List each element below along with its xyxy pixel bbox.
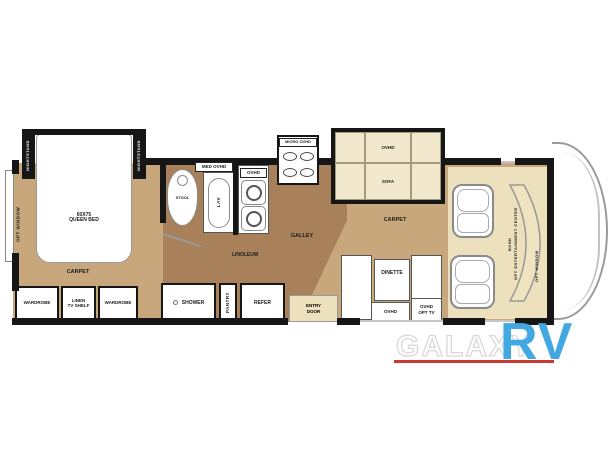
entertainment-center-label: OPT ENTERTAINMENT CENTER <box>514 197 519 291</box>
micro-ovhd-text: MICRO OVHD <box>285 140 311 144</box>
sofa-seat-left <box>335 163 365 200</box>
bottom-wall-4 <box>443 318 485 325</box>
shower-drain-icon <box>173 300 178 305</box>
sofa-ovhd-label: OVHD <box>381 145 394 150</box>
kitchen-sink-1 <box>241 180 266 205</box>
front-cap <box>552 142 608 320</box>
dinette-ovhd-label: OVHD <box>384 309 397 314</box>
linen-label-2: TV SHELF <box>68 303 90 308</box>
wardrobe-left-label: WARDROBE <box>24 300 51 305</box>
rear-corner-wall-bottom <box>12 253 19 291</box>
passenger-seat-cushion <box>455 284 490 304</box>
sofa-ovhd-cabinet-center: OVHD <box>365 132 412 163</box>
passenger-seat <box>450 255 495 309</box>
bunk-entertainment-labels: BUNK OPT ENTERTAINMENT CENTER <box>508 197 518 291</box>
queen-bed-label: 60x75 QUEEN BED <box>69 213 99 263</box>
wardrobe-right-label: WARDROBE <box>105 300 132 305</box>
refer: REFER <box>240 283 285 322</box>
bottom-wall-3 <box>337 318 360 325</box>
watermark-suffix-text: RV <box>500 312 573 372</box>
toilet-tank-icon <box>177 175 188 186</box>
toilet: STOOL <box>167 169 198 226</box>
stove: MICRO OVHD <box>277 135 319 185</box>
bottom-wall-1 <box>12 318 165 325</box>
nightstand-right: NIGHTSTAND <box>133 133 146 179</box>
bed-type-label: QUEEN BED <box>69 218 99 224</box>
bunk-label: BUNK <box>508 197 513 291</box>
living-carpet-label: CARPET <box>365 216 425 225</box>
ovhd-opt-tv-cabinet: OVHD OPT TV <box>411 298 442 321</box>
kitchen-sink-1-bowl-icon <box>246 185 262 201</box>
linoleum-label: LINOLEUM <box>215 251 275 260</box>
dinette-table: DINETTE <box>374 259 410 301</box>
passenger-seat-back <box>455 260 490 283</box>
entry-door-landing: ENTRY DOOR <box>289 295 338 322</box>
sofa-slide-grid: OVHD SOFA <box>335 132 441 200</box>
sofa-seat-center: SOFA <box>365 163 412 200</box>
bottom-window-line-1 <box>360 320 443 322</box>
kitchen-ovhd-label: OVHD <box>240 168 267 178</box>
lav-label: LAV <box>216 197 221 207</box>
burner-icon-2 <box>300 152 314 161</box>
queen-bed: 60x75 QUEEN BED <box>36 133 132 263</box>
lav-sink: LAV <box>208 178 230 228</box>
wardrobe-right: WARDROBE <box>98 286 138 320</box>
pantry: PANTRY <box>219 283 237 322</box>
driver-seat-back <box>457 189 489 212</box>
dinette-label: DINETTE <box>381 270 402 276</box>
burner-icon-3 <box>283 168 297 177</box>
bath-kitchen-divider-wall <box>233 163 238 235</box>
front-vertical-wall <box>547 160 554 320</box>
nightstand-left-label: NIGHTSTAND <box>22 133 35 179</box>
ovhd-opt-tv-label-2: OPT TV <box>418 310 434 315</box>
floorplan-stage: OPT WINDOW NIGHTSTAND NIGHTSTAND 60x75 Q… <box>0 0 614 460</box>
top-window-line <box>501 161 515 163</box>
sofa-seat-right <box>411 163 441 200</box>
opt-window-front-label: OPT WINDOW <box>534 240 541 292</box>
bed-slide-top-wall <box>22 129 146 135</box>
rear-corner-wall-top <box>12 160 19 174</box>
shower-label: SHOWER <box>182 300 205 306</box>
toilet-label: STOOL <box>168 194 197 202</box>
micro-ovhd-label: MICRO OVHD <box>279 138 317 147</box>
top-wall-2 <box>317 158 334 165</box>
bottom-wall-2 <box>160 318 288 325</box>
driver-seat <box>452 184 494 238</box>
sofa-ovhd-cabinet-left <box>335 132 365 163</box>
stove-burners <box>281 148 315 181</box>
burner-icon-4 <box>300 168 314 177</box>
pantry-label: PANTRY <box>225 292 230 313</box>
dinette-ovhd-cabinet: OVHD <box>371 302 410 321</box>
kitchen-sink-2 <box>241 206 266 231</box>
sofa-ovhd-cabinet-right <box>411 132 441 163</box>
shower: SHOWER <box>161 283 216 322</box>
kitchen-sink-counter: OVHD <box>238 165 269 234</box>
burner-icon-1 <box>283 152 297 161</box>
med-ovhd-text: MED OVHD <box>202 165 226 170</box>
sofa-slide: OVHD SOFA <box>331 128 445 204</box>
bath-left-wall <box>160 163 166 223</box>
kitchen-ovhd-text: OVHD <box>247 171 260 176</box>
med-ovhd-label: MED OVHD <box>195 162 233 172</box>
rear-window <box>5 170 14 262</box>
front-cap-inner-line <box>562 152 600 310</box>
kitchen-sink-2-bowl-icon <box>246 211 262 227</box>
opt-window-rear-label: OPT WINDOW <box>14 193 22 255</box>
nightstand-left: NIGHTSTAND <box>22 133 35 179</box>
top-wall-3 <box>443 158 501 165</box>
galley-label: GALLEY <box>272 232 332 241</box>
lav-counter: LAV <box>203 172 234 233</box>
sofa-label: SOFA <box>382 179 394 184</box>
bedroom-carpet-label: CARPET <box>48 268 108 276</box>
refer-label: REFER <box>254 300 271 306</box>
nightstand-right-label: NIGHTSTAND <box>133 133 146 179</box>
wardrobe-left: WARDROBE <box>15 286 59 320</box>
linen-cabinet: LINEN TV SHELF <box>61 286 96 320</box>
driver-seat-cushion <box>457 213 489 233</box>
dinette-bench-left <box>341 255 372 320</box>
entry-door-label-2: DOOR <box>307 309 321 314</box>
